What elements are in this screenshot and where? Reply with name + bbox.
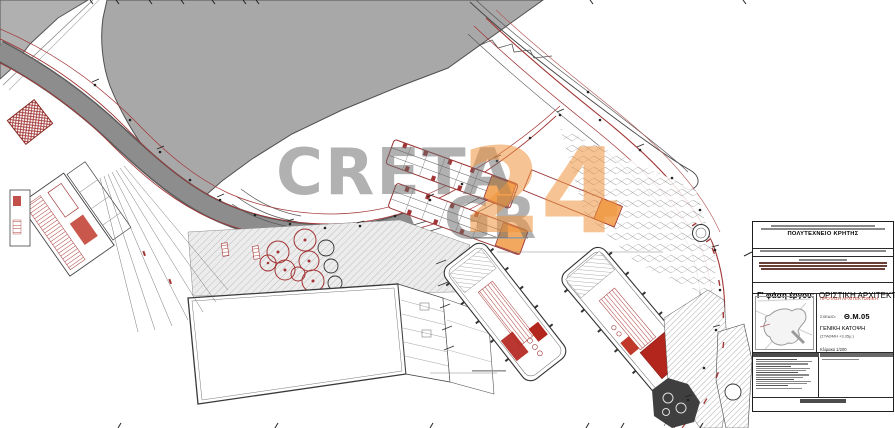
- sheet-subtitle: (ΣΤΑΘΜΗ +3.35μ.): [820, 334, 872, 339]
- location-map-thumbnail: [755, 296, 814, 350]
- title-block-subheader: [753, 249, 893, 257]
- microtext-line: [759, 265, 888, 267]
- project-title-section: [753, 257, 893, 283]
- site-plan-screenshot: CRETA GR 24 ΠΟΛΥΤΕΧΝΕΙΟ ΚΡΗΤΗΣ Γ' φάση έ…: [0, 0, 895, 428]
- proposal-line: ΠΡΟΤΑΣΗ ΑΡΧΙΤΕΚΤΟΝΙΚΗ: [820, 296, 878, 301]
- sheet-info-section: ΠΡΟΤΑΣΗ ΑΡΧΙΤΕΚΤΟΝΙΚΗ ΣΧΕΔΙΟ:Θ.Μ.05 ΓΕΝΙ…: [753, 294, 893, 353]
- title-block-header: ΠΟΛΥΤΕΧΝΕΙΟ ΚΡΗΤΗΣ: [753, 222, 893, 249]
- organization-name: ΠΟΛΥΤΕΧΝΕΙΟ ΚΡΗΤΗΣ: [773, 230, 874, 236]
- footer-cell: [800, 399, 846, 403]
- microtext-line: [759, 262, 888, 264]
- credits-empty-column: [819, 357, 893, 397]
- sheet-title: ΓΕΝΙΚΗ ΚΑΤΟΨΗ: [820, 325, 892, 331]
- title-block-margin: [753, 404, 893, 411]
- microtext-line: [799, 259, 847, 260]
- microtext-line: [771, 225, 875, 227]
- sheet-number: Θ.Μ.05: [844, 312, 870, 321]
- title-block: ΠΟΛΥΤΕΧΝΕΙΟ ΚΡΗΤΗΣ Γ' φάση έργου: ΟΡΙΣΤΙ…: [752, 221, 894, 412]
- sheet-title-cell: ΠΡΟΤΑΣΗ ΑΡΧΙΤΕΚΤΟΝΙΚΗ ΣΧΕΔΙΟ:Θ.Μ.05 ΓΕΝΙ…: [817, 294, 895, 352]
- sheet-number-label: ΣΧΕΔΙΟ:: [820, 314, 832, 319]
- location-map-cell: [753, 294, 817, 352]
- title-block-footer: [753, 397, 893, 404]
- credits-section: [753, 353, 893, 411]
- plaza: [188, 220, 470, 296]
- main-building: [188, 284, 494, 404]
- scale-note: Κλίμακα 1/200: [820, 347, 874, 352]
- microtext-line: [761, 268, 884, 270]
- microtext-line: [760, 250, 886, 251]
- phase-section: Γ' φάση έργου: ΟΡΙΣΤΙΚΗ ΑΡΧΙΤΕΚΤΟΝΙΚΗ ΜΕ…: [753, 283, 893, 294]
- credits-list: [753, 357, 819, 397]
